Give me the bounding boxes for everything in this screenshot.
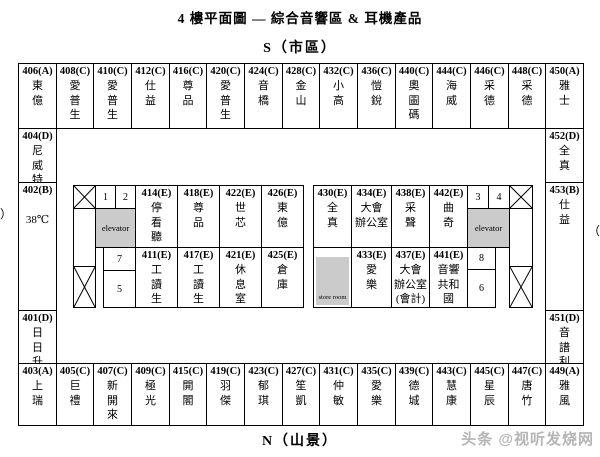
unit-cell-407C: 407(C)新 開 來 — [93, 363, 132, 426]
unit-number: 410(C) — [94, 65, 131, 78]
unit-name: 羽 傑 — [207, 379, 244, 408]
unit-name: 愛 普 生 — [94, 79, 131, 123]
unit-cell-446C: 446(C)采 德 — [470, 63, 509, 129]
unit-cell-406A: 406(A)東 億 — [18, 63, 57, 129]
unit-cell-421E: 421(E)休 息 室 — [219, 247, 262, 308]
floor-plan-page: 4 樓平面圖 — 綜合音響區 & 耳機產品 S（市區） elevator ele… — [0, 0, 600, 457]
unit-cell-439C: 439(C)德 城 — [395, 363, 433, 426]
stairs-icon — [73, 266, 96, 308]
unit-number: 423(C) — [245, 365, 282, 378]
unit-number: 415(C) — [170, 365, 206, 378]
unit-cell-412C: 412(C)仕 益 — [131, 63, 170, 129]
unit-cell-431C: 431(C)仲 敏 — [319, 363, 358, 426]
corridor-cell-6: 6 — [467, 269, 496, 308]
unit-number: 446(C) — [471, 65, 508, 78]
unit-number: 417(E) — [178, 249, 219, 262]
unit-cell-450A: 450(A)雅 士 — [545, 63, 584, 129]
unit-name: 極 光 — [132, 379, 169, 408]
unit-number: 432(C) — [320, 65, 357, 78]
unit-name: 全 真 — [314, 201, 351, 230]
unit-name: 停 看 聽 — [136, 201, 177, 245]
stairs-icon — [509, 266, 533, 308]
watermark: 头条 @视听发烧网 — [461, 428, 594, 449]
unit-number: 426(E) — [262, 187, 303, 200]
unit-cell-440C: 440(C)奧 圖 碼 — [395, 63, 433, 129]
unit-number: 418(E) — [178, 187, 219, 200]
unit-name: 大會 辦公室 — [352, 201, 391, 230]
corridor-cell-8: 8 — [467, 247, 496, 270]
unit-cell-443C: 443(C)慧 康 — [432, 363, 471, 426]
unit-name: 開 閣 — [170, 379, 206, 408]
unit-name: 小 高 — [320, 79, 357, 108]
unit-name: 倉 庫 — [262, 263, 303, 292]
unit-name: 大會 辦公室 (會計) — [392, 263, 429, 307]
unit-number: 408(C) — [57, 65, 93, 78]
unit-cell-426E: 426(E)東 億 — [261, 185, 304, 248]
unit-number: 407(C) — [94, 365, 131, 378]
unit-cell-417E: 417(E)工 讀 生 — [177, 247, 220, 308]
elevator-left: elevator — [95, 208, 136, 248]
unit-name: 曲 奇 — [430, 201, 467, 230]
unit-number: 450(A) — [546, 65, 583, 78]
unit-name: 唐 竹 — [509, 379, 545, 408]
unit-number: 406(A) — [19, 65, 56, 78]
unit-cell-438E: 438(E)采 聲 — [391, 185, 430, 248]
unit-cell-427C: 427(C)笙 凱 — [282, 363, 320, 426]
elevator-right: elevator — [467, 208, 510, 248]
unit-number: 441(E) — [430, 249, 467, 262]
unit-cell-452D: 452(D)全 真 — [545, 128, 584, 183]
unit-name: 奧 圖 碼 — [396, 79, 432, 123]
unit-number: 420(C) — [207, 65, 244, 78]
orientation-south-label: S（市區） — [0, 37, 600, 57]
unit-number: 451(D) — [546, 312, 583, 325]
unit-cell-409C: 409(C)極 光 — [131, 363, 170, 426]
unit-cell-445C: 445(C)星 辰 — [470, 363, 509, 426]
unit-number: 434(E) — [352, 187, 391, 200]
unit-cell-432C: 432(C)小 高 — [319, 63, 358, 129]
unit-name: 海 威 — [433, 79, 470, 108]
unit-name: 愛 樂 — [358, 379, 395, 408]
cropped-left-label: ） — [0, 205, 12, 222]
unit-number: 430(E) — [314, 187, 351, 200]
unit-number: 443(C) — [433, 365, 470, 378]
unit-number: 427(C) — [283, 365, 319, 378]
unit-cell-401D: 401(D)日 日 升 — [18, 310, 57, 364]
unit-cell-414E: 414(E)停 看 聽 — [135, 185, 178, 248]
unit-number: 447(C) — [509, 365, 545, 378]
unit-cell-419C: 419(C)羽 傑 — [206, 363, 245, 426]
unit-cell-420C: 420(C)愛 普 生 — [206, 63, 245, 129]
unit-cell-410C: 410(C)愛 普 生 — [93, 63, 132, 129]
unit-number: 409(C) — [132, 365, 169, 378]
unit-name: 東 億 — [262, 201, 303, 230]
unit-name: 仕 益 — [132, 79, 169, 108]
unit-name: 郁 琪 — [245, 379, 282, 408]
store-room: store room — [316, 257, 349, 305]
unit-cell-423C: 423(C)郁 琪 — [244, 363, 283, 426]
unit-number: 445(C) — [471, 365, 508, 378]
unit-number: 438(E) — [392, 187, 429, 200]
unit-number: 424(C) — [245, 65, 282, 78]
unit-cell-435C: 435(C)愛 樂 — [357, 363, 396, 426]
unit-name: 采 德 — [471, 79, 508, 108]
corridor-cell-5: 5 — [103, 270, 136, 308]
unit-cell-448C: 448(C)采 德 — [508, 63, 546, 129]
unit-number: 436(C) — [358, 65, 395, 78]
unit-number: 453(B) — [546, 184, 583, 197]
unit-number: 405(C) — [57, 365, 93, 378]
unit-cell-416C: 416(C)尊 品 — [169, 63, 207, 129]
unit-number: 425(E) — [262, 249, 303, 262]
unit-number: 403(A) — [19, 365, 56, 378]
unit-name: 尼 威 特 — [19, 144, 56, 183]
unit-name: 德 城 — [396, 379, 432, 408]
unit-number: 411(E) — [136, 249, 177, 262]
unit-cell-453B: 453(B)仕 益 — [545, 182, 584, 311]
stairs-icon — [509, 185, 533, 209]
unit-name: 仕 益 — [546, 198, 583, 227]
unit-name: 雅 士 — [546, 79, 583, 108]
unit-name: 尊 品 — [178, 201, 219, 230]
unit-name: 全 真 — [546, 144, 583, 173]
unit-name: 工 讀 生 — [136, 263, 177, 307]
unit-number: 439(C) — [396, 365, 432, 378]
unit-name: 巨 禮 — [57, 379, 93, 408]
floor-map: elevator elevator store room 406(A)東 億40… — [18, 63, 584, 426]
unit-number: 422(E) — [220, 187, 261, 200]
unit-cell-444C: 444(C)海 威 — [432, 63, 471, 129]
unit-name: 笙 凱 — [283, 379, 319, 408]
unit-number: 412(C) — [132, 65, 169, 78]
unit-cell-441E: 441(E)音響 共和 國 — [429, 247, 468, 308]
unit-number: 442(E) — [430, 187, 467, 200]
unit-cell-403A: 403(A)上 瑞 — [18, 363, 57, 426]
unit-cell-428C: 428(C)金 山 — [282, 63, 320, 129]
unit-name: 愛 普 生 — [57, 79, 93, 123]
unit-number: 452(D) — [546, 130, 583, 143]
unit-cell-447C: 447(C)唐 竹 — [508, 363, 546, 426]
unit-number: 435(C) — [358, 365, 395, 378]
cropped-right-label: （ — [588, 222, 600, 239]
unit-cell-408C: 408(C)愛 普 生 — [56, 63, 94, 129]
unit-cell-418E: 418(E)尊 品 — [177, 185, 220, 248]
unit-name: 上 瑞 — [19, 379, 56, 408]
unit-name: 工 讀 生 — [178, 263, 219, 307]
unit-name: 38℃ — [19, 198, 56, 227]
unit-name: 愷 銳 — [358, 79, 395, 108]
unit-number: 444(C) — [433, 65, 470, 78]
unit-number: 404(D) — [19, 130, 56, 143]
unit-name: 尊 品 — [170, 79, 206, 108]
stairs-icon — [73, 185, 96, 209]
unit-name: 仲 敏 — [320, 379, 357, 408]
unit-cell-437E: 437(E)大會 辦公室 (會計) — [391, 247, 430, 308]
unit-cell-434E: 434(E)大會 辦公室 — [351, 185, 392, 248]
corridor-cell-7: 7 — [103, 247, 136, 271]
unit-name: 東 億 — [19, 79, 56, 108]
unit-cell-402B: 402(B) 38℃ — [18, 182, 57, 311]
unit-number: 421(E) — [220, 249, 261, 262]
unit-number: 414(E) — [136, 187, 177, 200]
unit-cell-422E: 422(E)世 芯 — [219, 185, 262, 248]
unit-cell-433E: 433(E)愛 樂 — [351, 247, 392, 308]
unit-name: 金 山 — [283, 79, 319, 108]
unit-name: 新 開 來 — [94, 379, 131, 423]
unit-name: 音響 共和 國 — [430, 263, 467, 307]
unit-name: 音 譜 利 — [546, 326, 583, 364]
unit-name: 慧 康 — [433, 379, 470, 408]
unit-cell-430E: 430(E)全 真 — [313, 185, 352, 248]
unit-cell-451D: 451(D)音 譜 利 — [545, 310, 584, 364]
unit-cell-436C: 436(C)愷 銳 — [357, 63, 396, 129]
unit-cell-404D: 404(D)尼 威 特 — [18, 128, 57, 183]
corridor-cell-1: 1 — [95, 185, 116, 209]
unit-name: 世 芯 — [220, 201, 261, 230]
unit-cell-405C: 405(C)巨 禮 — [56, 363, 94, 426]
unit-cell-449A: 449(A)雅 風 — [545, 363, 584, 426]
unit-cell-411E: 411(E)工 讀 生 — [135, 247, 178, 308]
store-room-cell: store room — [313, 247, 352, 308]
unit-cell-424C: 424(C)音 橋 — [244, 63, 283, 129]
page-title: 4 樓平面圖 — 綜合音響區 & 耳機產品 — [0, 7, 600, 27]
unit-number: 428(C) — [283, 65, 319, 78]
unit-cell-442E: 442(E)曲 奇 — [429, 185, 468, 248]
unit-number: 419(C) — [207, 365, 244, 378]
unit-name: 雅 風 — [546, 379, 583, 408]
corridor-cell-2: 2 — [115, 185, 136, 209]
unit-number: 437(E) — [392, 249, 429, 262]
unit-cell-425E: 425(E)倉 庫 — [261, 247, 304, 308]
unit-number: 448(C) — [509, 65, 545, 78]
unit-number: 433(E) — [352, 249, 391, 262]
unit-name: 星 辰 — [471, 379, 508, 408]
unit-number: 431(C) — [320, 365, 357, 378]
unit-name: 日 日 升 — [19, 326, 56, 364]
unit-number: 416(C) — [170, 65, 206, 78]
corridor-cell-4: 4 — [488, 185, 510, 209]
unit-name: 采 德 — [509, 79, 545, 108]
unit-name: 采 聲 — [392, 201, 429, 230]
unit-number: 402(B) — [19, 184, 56, 197]
corridor-cell-3: 3 — [467, 185, 489, 209]
unit-number: 401(D) — [19, 312, 56, 325]
unit-name: 休 息 室 — [220, 263, 261, 307]
unit-number: 449(A) — [546, 365, 583, 378]
unit-name: 音 橋 — [245, 79, 282, 108]
unit-number: 440(C) — [396, 65, 432, 78]
unit-name: 愛 樂 — [352, 263, 391, 292]
unit-name: 愛 普 生 — [207, 79, 244, 123]
unit-cell-415C: 415(C)開 閣 — [169, 363, 207, 426]
